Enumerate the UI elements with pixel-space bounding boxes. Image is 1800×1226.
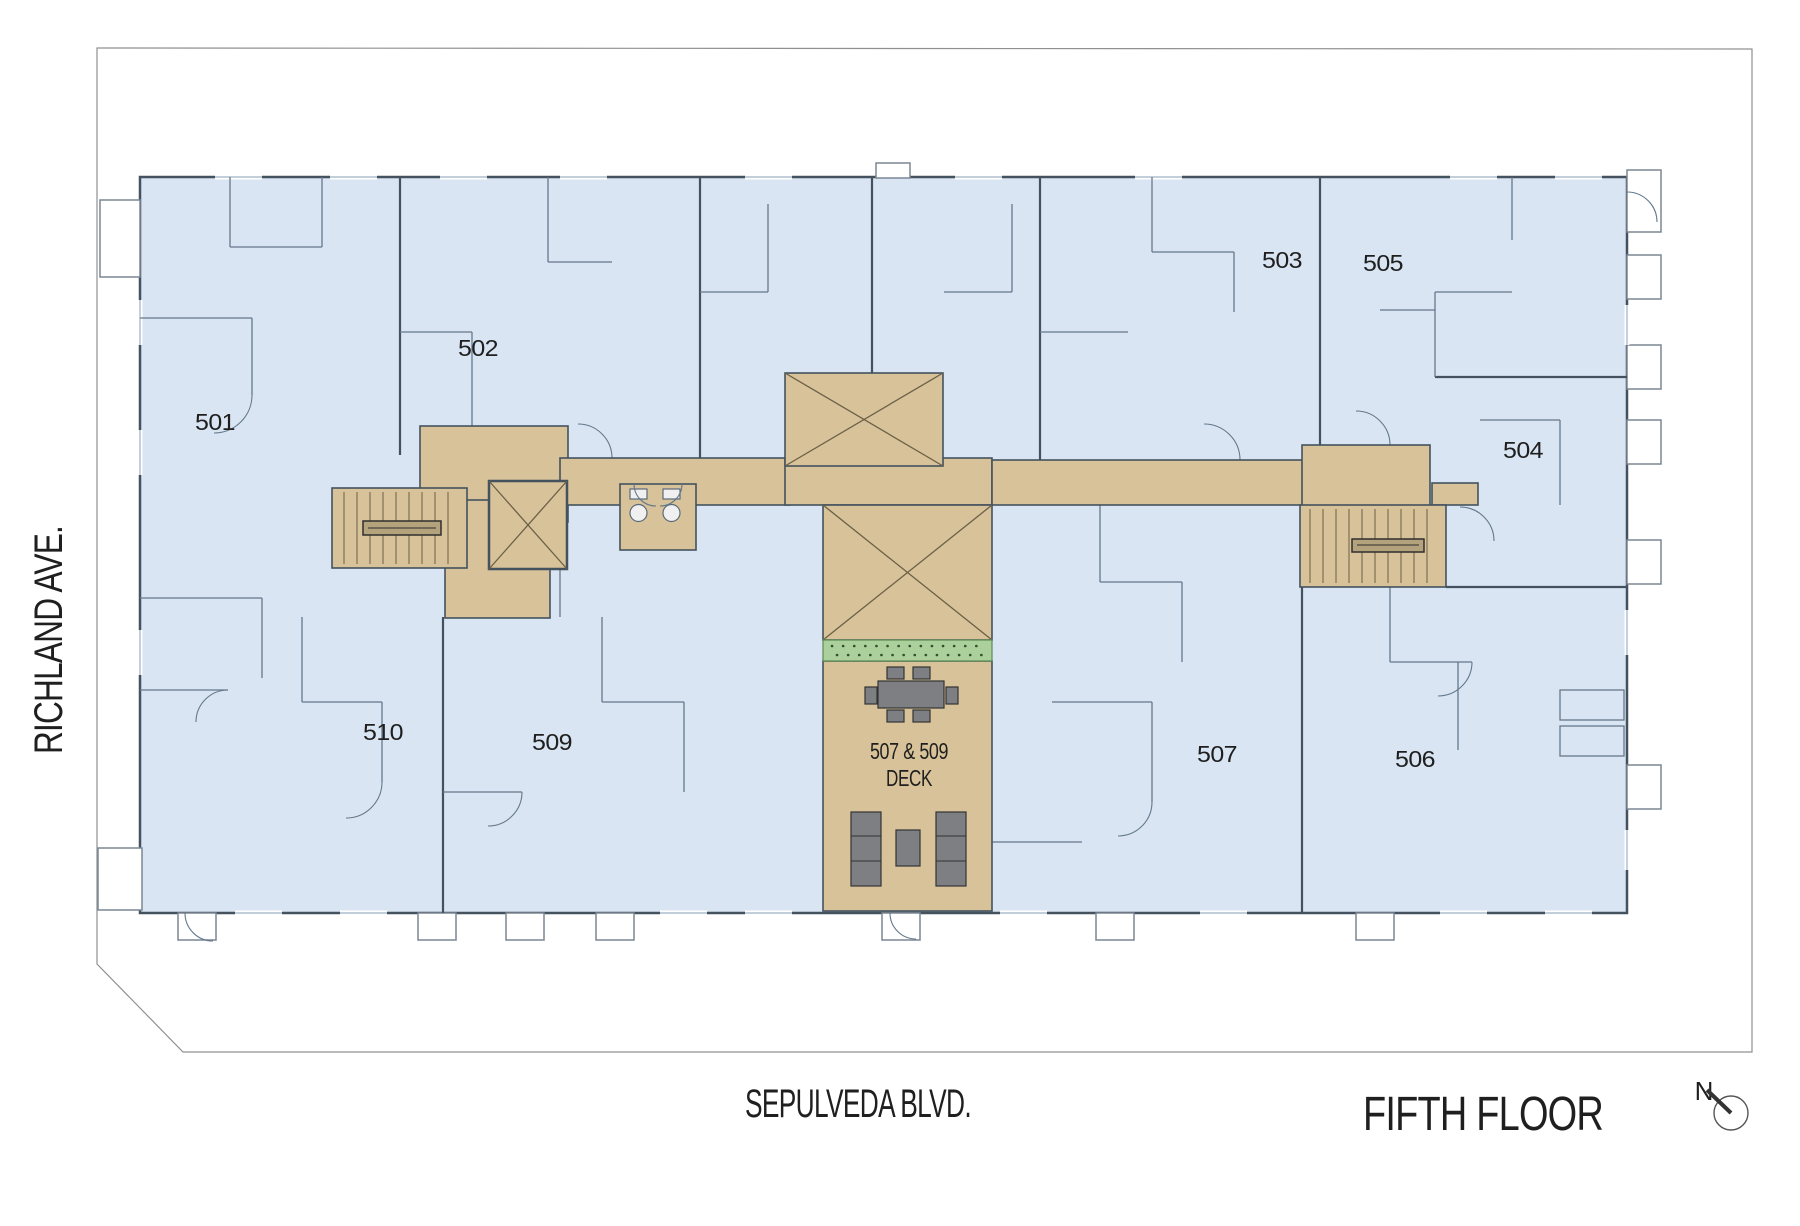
balcony	[876, 163, 910, 178]
balcony	[98, 848, 142, 910]
chair	[946, 687, 958, 704]
balcony	[1627, 540, 1661, 584]
unit-505-label: 505	[1363, 250, 1403, 276]
unit-504-label: 504	[1503, 437, 1544, 463]
sofa	[851, 812, 881, 886]
chair	[887, 667, 904, 679]
unit-503-label: 503	[1262, 247, 1302, 273]
north-arrow-icon: N	[1695, 1076, 1748, 1130]
balcony	[1627, 345, 1661, 389]
street-label-richland: RICHLAND AVE.	[27, 526, 71, 754]
elevator	[489, 481, 567, 569]
balcony	[1627, 255, 1661, 299]
chair	[887, 710, 904, 722]
chair	[913, 667, 930, 679]
sofa	[936, 812, 966, 886]
deck-planter	[823, 640, 992, 661]
unit-501-label: 501	[195, 409, 235, 435]
balcony	[506, 913, 544, 940]
chair	[865, 687, 877, 704]
unit-507-label: 507	[1197, 741, 1237, 767]
unit-509-label: 509	[532, 729, 572, 755]
balcony	[596, 913, 634, 940]
unit-502-label: 502	[458, 335, 498, 361]
deck-label-line1: 507 & 509	[870, 738, 948, 764]
balcony	[1627, 765, 1661, 809]
balcony	[100, 200, 140, 277]
deck-label-line2: DECK	[886, 765, 933, 791]
floor-title: FIFTH FLOOR	[1363, 1088, 1603, 1141]
balcony	[418, 913, 456, 940]
balcony	[1627, 170, 1661, 232]
street-label-sepulveda: SEPULVEDA BLVD.	[745, 1082, 971, 1126]
coffee-table	[896, 830, 920, 866]
balcony	[882, 913, 920, 940]
balcony	[1096, 913, 1134, 940]
balcony	[1627, 420, 1661, 464]
chair	[913, 710, 930, 722]
floor-plan-page: 501 502 503 505 504 510 509 507 506 507 …	[0, 0, 1800, 1226]
dining-table	[878, 681, 944, 708]
unit-506-label: 506	[1395, 746, 1435, 772]
unit-510-label: 510	[363, 719, 403, 745]
balcony	[1356, 913, 1394, 940]
floor-plan-canvas: 501 502 503 505 504 510 509 507 506 507 …	[0, 0, 1800, 1226]
